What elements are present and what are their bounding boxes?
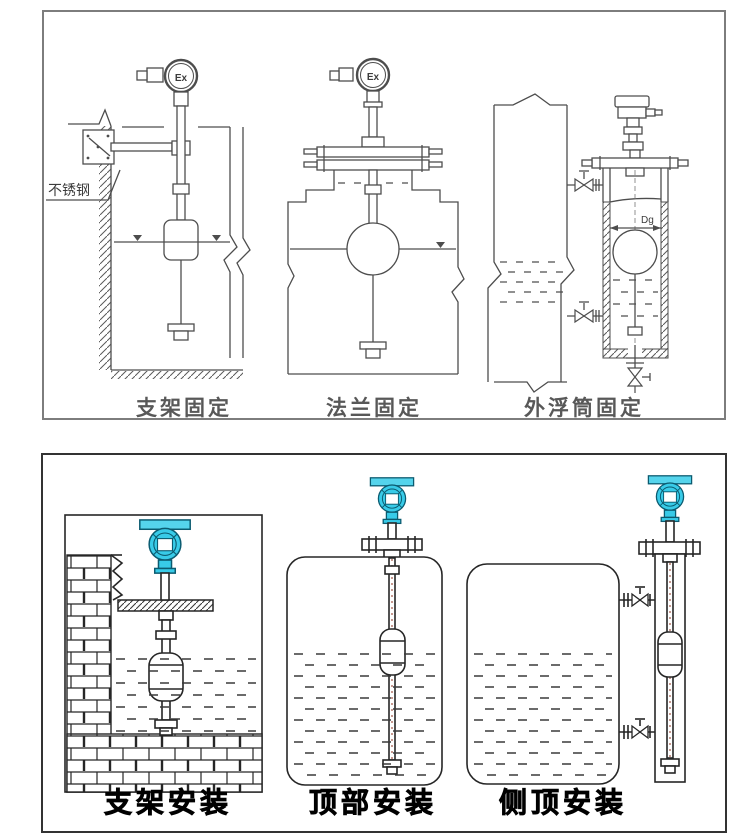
- tank-outline: [467, 564, 619, 784]
- teal-transmitter-icon: [370, 478, 413, 539]
- dg-dimension: Dg: [610, 215, 661, 231]
- label-external-chamber-fixing: 外浮筒固定: [474, 392, 694, 422]
- side-top-installation-diagram: [448, 468, 728, 793]
- stainless-steel-label: 不锈钢: [48, 182, 90, 198]
- label-side-top-installation: 侧顶安装: [463, 781, 663, 821]
- transmitter-head-icon: [615, 96, 662, 158]
- chamber-float: [613, 230, 658, 335]
- transmitter-head-ex-icon: Ex: [137, 60, 197, 106]
- label-flange-fixing: 法兰固定: [274, 392, 474, 422]
- installation-methods-panel: 支架安装 顶部安装 侧顶安装: [41, 453, 727, 833]
- tank-liquid: [500, 262, 564, 302]
- teal-transmitter-icon: [648, 476, 691, 542]
- fixing-methods-panel: 不锈钢 Ex: [42, 10, 726, 420]
- flange-fixing-diagram: Ex: [284, 42, 494, 392]
- label-bracket-fixing: 支架固定: [84, 392, 284, 422]
- page: { "colors": { "accent_teal": "#38cbe8", …: [0, 0, 750, 840]
- ex-label: Ex: [175, 73, 188, 84]
- lower-valve-icon: [567, 302, 603, 322]
- tank-outline: [287, 557, 442, 785]
- lower-valve-icon: [619, 719, 655, 739]
- label-bracket-installation: 支架安装: [73, 781, 263, 821]
- upper-valve-icon: [567, 171, 603, 191]
- label-top-installation: 顶部安装: [278, 781, 468, 821]
- dg-label: Dg: [641, 215, 654, 226]
- stem-and-float: [290, 170, 456, 358]
- ex-label: Ex: [367, 72, 380, 83]
- external-chamber: [655, 554, 685, 782]
- upper-valve-icon: [619, 587, 655, 607]
- tank-outline: [488, 94, 574, 392]
- bracket-fixing-diagram: 不锈钢 Ex: [44, 40, 304, 390]
- transmitter-head-ex-icon: Ex: [330, 59, 389, 107]
- top-flange: [362, 536, 422, 558]
- flange-mount: [304, 107, 442, 172]
- external-chamber-fixing-diagram: Dg: [474, 52, 724, 397]
- shelf-bracket: [118, 600, 213, 611]
- stem-and-float: [164, 106, 198, 340]
